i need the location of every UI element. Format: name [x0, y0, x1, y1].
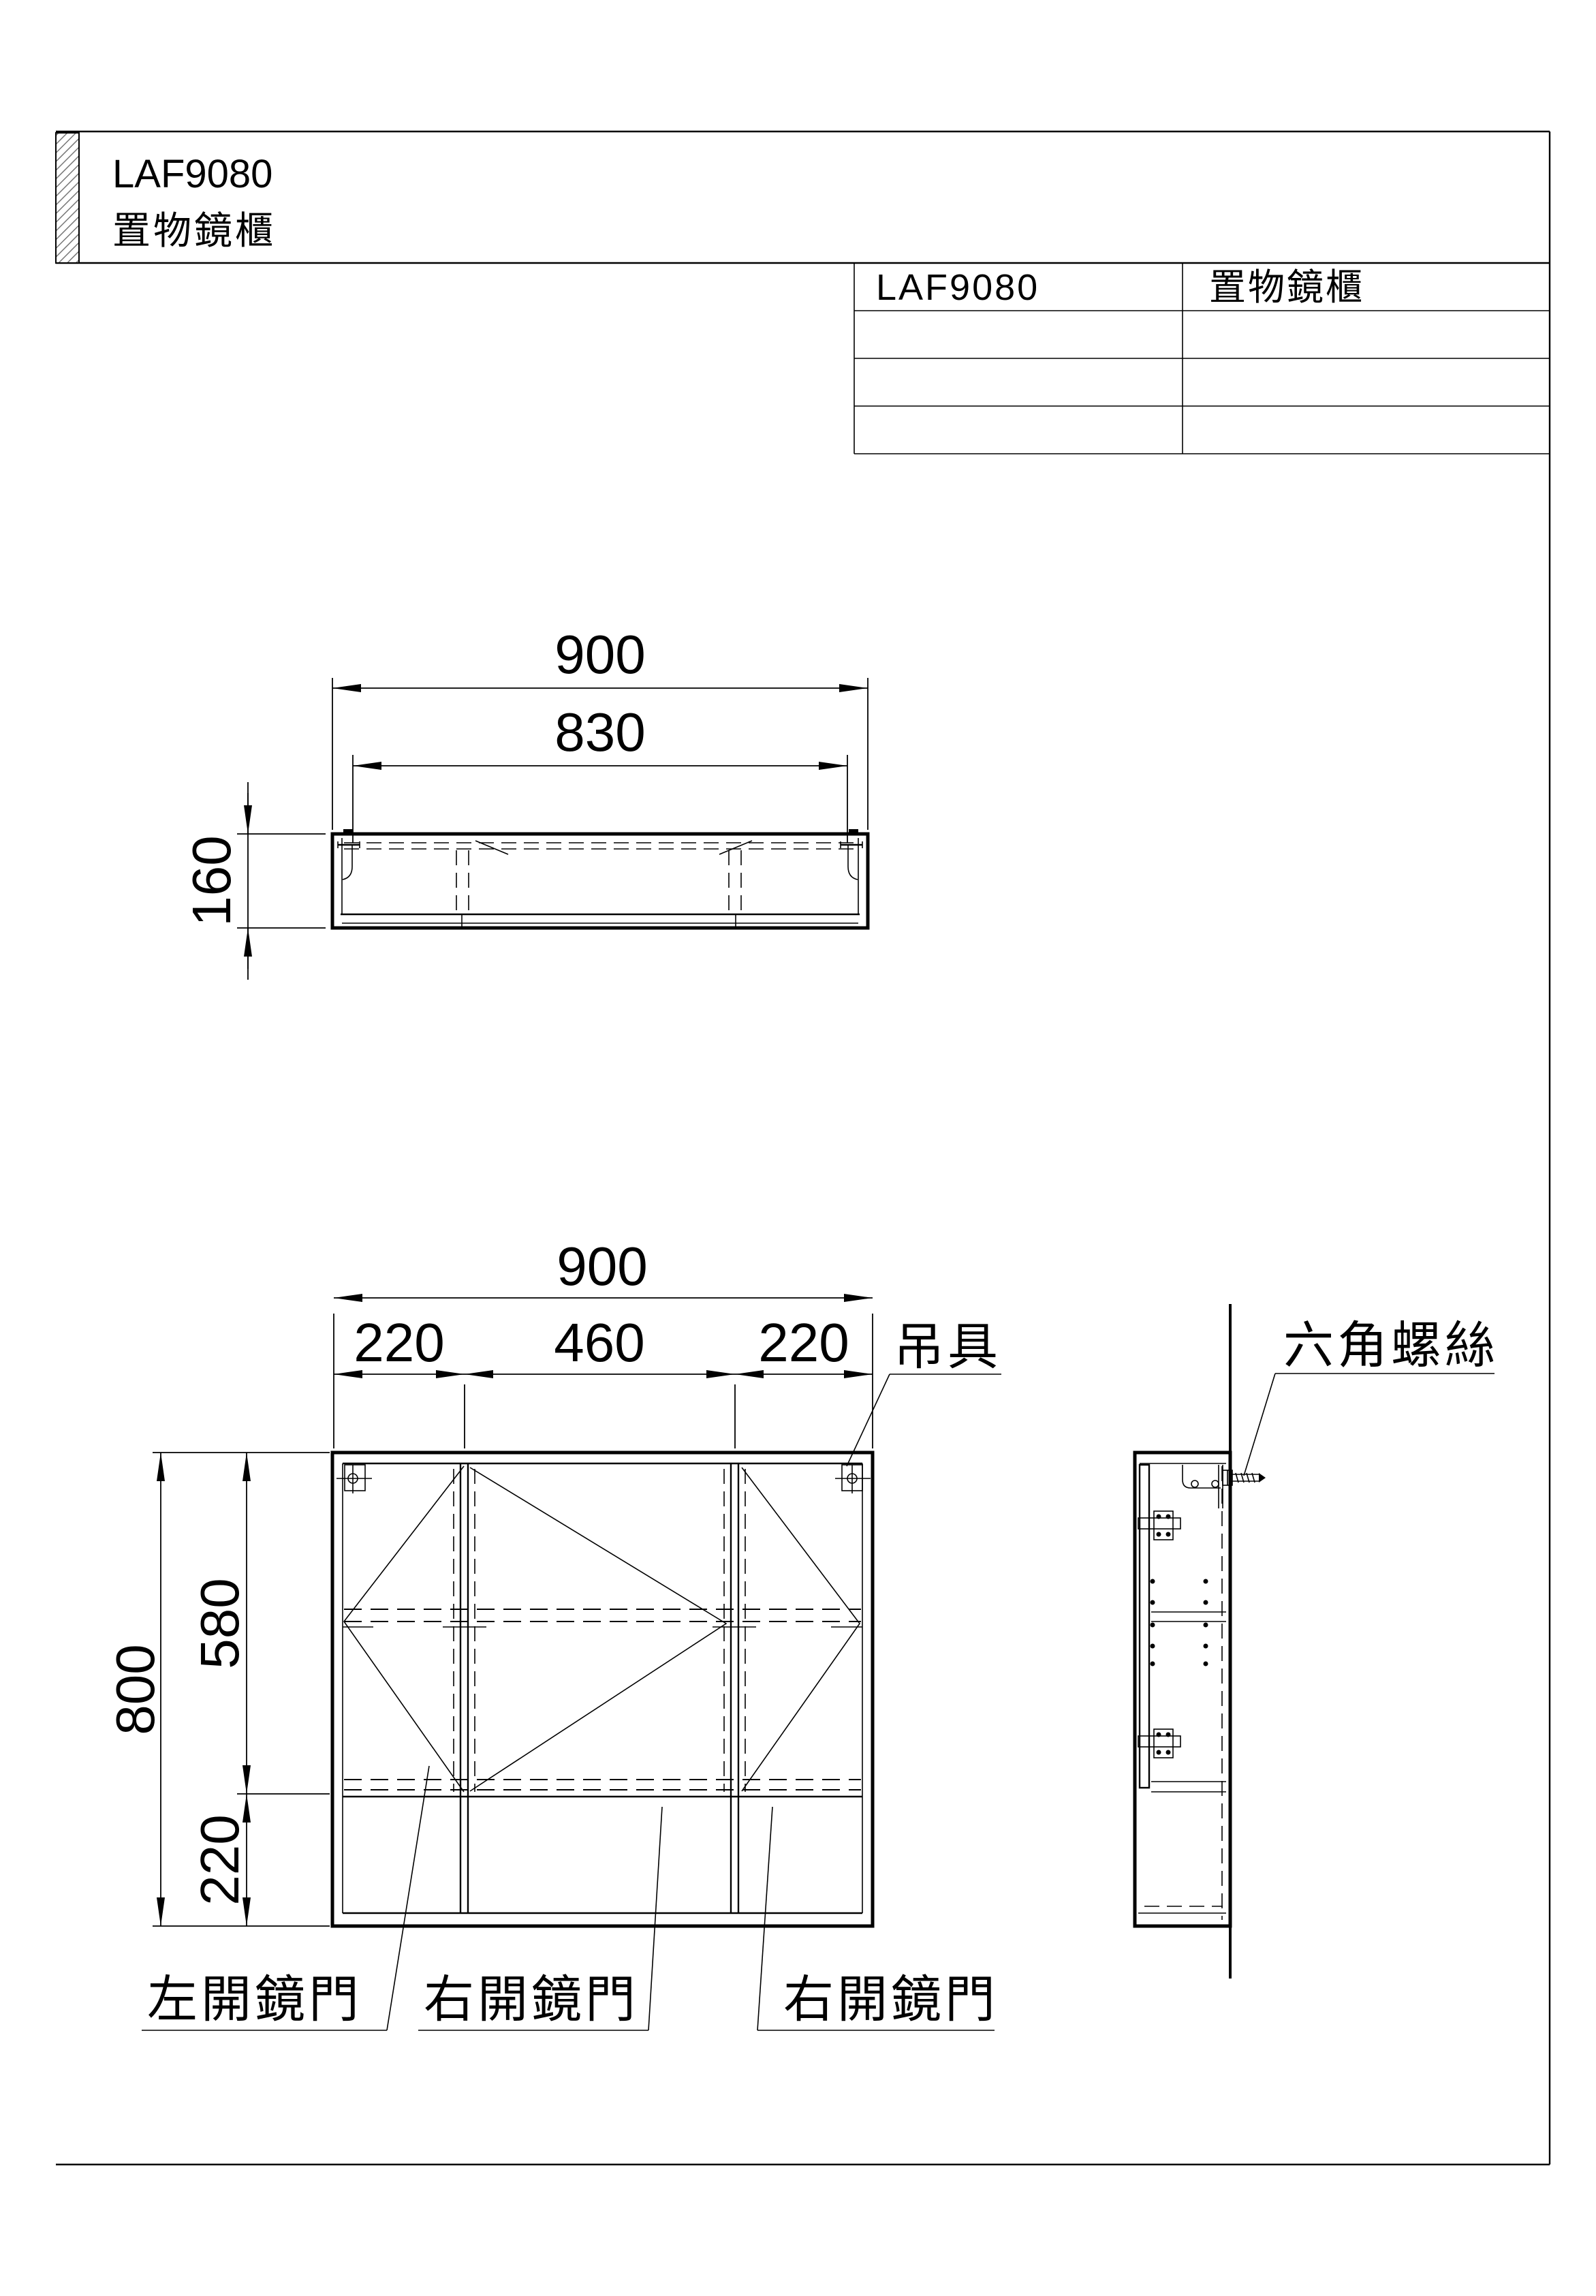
hanger-tab-left	[343, 829, 353, 834]
door-callout-center: 右開鏡門	[418, 1807, 662, 2030]
hinge-cup-left	[338, 841, 360, 880]
door-swing-right	[742, 1468, 860, 1791]
shelf-pin-holes	[1151, 1579, 1208, 1666]
hanger-callout: 吊具	[847, 1318, 1001, 1466]
door-callout-right: 右開鏡門	[757, 1807, 999, 2030]
front-view-dim-heights: 800 580 220	[105, 1453, 330, 1926]
spec-table-model-cell: LAF9080	[876, 267, 1039, 308]
hanger-bracket-left	[337, 1465, 372, 1493]
hanger-tab-right	[849, 829, 858, 834]
title-hatch-strip	[56, 133, 79, 263]
spec-table: LAF9080 置物鏡櫃	[854, 263, 1550, 454]
hinge-cup-right	[841, 841, 862, 880]
door-label-right: 右開鏡門	[783, 1971, 999, 2028]
top-view-dim-160: 160	[181, 782, 326, 980]
door-callout-left: 左開鏡門	[142, 1766, 429, 2030]
top-view-dim-830: 830	[353, 702, 847, 843]
door-label-left: 左開鏡門	[147, 1971, 362, 2028]
top-dim-830-text: 830	[554, 702, 645, 762]
front-dim-220-left-text: 220	[354, 1312, 444, 1373]
door-swing-left	[344, 1466, 464, 1792]
hex-screw-callout: 六角螺絲	[1244, 1317, 1499, 1476]
title-model-text: LAF9080	[112, 152, 272, 196]
side-hanger-bracket	[1183, 1465, 1223, 1508]
front-dim-900-text: 900	[557, 1236, 647, 1297]
hex-screw-label: 六角螺絲	[1283, 1317, 1499, 1374]
door-swing-center	[470, 1468, 726, 1791]
side-view: 六角螺絲	[1135, 1304, 1499, 1979]
door-label-center: 右開鏡門	[424, 1971, 639, 2028]
front-dim-460-text: 460	[554, 1312, 644, 1373]
front-dim-800-text: 800	[105, 1644, 166, 1735]
front-view: 900 220 460 220 800 580 220 吊具	[105, 1236, 1001, 2030]
drawing-sheet: LAF9080 置物鏡櫃 LAF9080 置物鏡櫃	[0, 0, 1596, 2296]
top-dim-900-text: 900	[554, 624, 645, 685]
sheet-frame	[56, 131, 1550, 2165]
hanger-label: 吊具	[894, 1318, 1001, 1375]
top-dim-160-text: 160	[181, 835, 242, 926]
side-door-slab	[1140, 1465, 1149, 1788]
front-view-dim-row: 220 460 220	[334, 1312, 873, 1448]
top-view: 900 830 160	[181, 624, 868, 980]
front-dim-220-bottom-text: 220	[189, 1814, 250, 1905]
title-product-name-text: 置物鏡櫃	[112, 209, 276, 252]
front-dim-580-text: 580	[189, 1578, 250, 1669]
spec-table-name-cell: 置物鏡櫃	[1209, 267, 1364, 308]
front-dim-220-right-text: 220	[758, 1312, 849, 1373]
side-hinge-lower	[1138, 1729, 1180, 1758]
title-block: LAF9080 置物鏡櫃	[112, 152, 276, 252]
hanger-bracket-right	[835, 1465, 871, 1493]
side-hinge-upper	[1138, 1511, 1180, 1540]
